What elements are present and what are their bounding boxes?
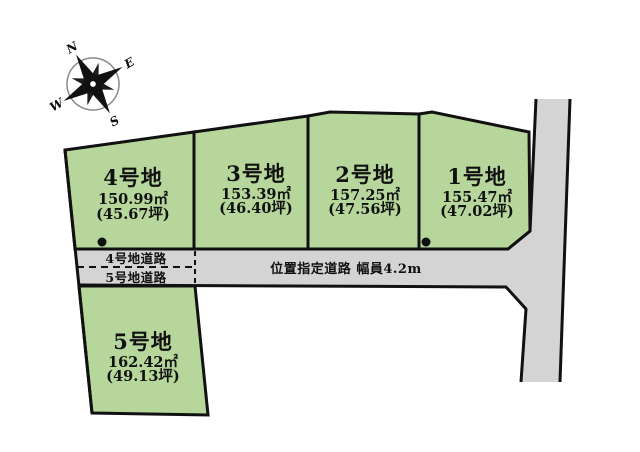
plot-5-area-tsubo: (49.13坪) xyxy=(106,368,180,385)
main-road-label: 位置指定道路 幅員4.2m xyxy=(270,261,421,277)
compass-label-west: W xyxy=(47,95,67,115)
boundary-marker-dot xyxy=(98,238,107,247)
plot-3-name: 3号地 xyxy=(226,161,286,186)
plot-4-name: 4号地 xyxy=(103,165,163,190)
plot-3-label-group: 3号地 153.39㎡ (46.40坪) xyxy=(219,161,293,217)
compass-label-north: N xyxy=(63,38,81,57)
compass-rose: N E S W xyxy=(26,18,159,152)
plot-2-label-group: 2号地 157.25㎡ (47.56坪) xyxy=(328,162,402,218)
plot-2-name: 2号地 xyxy=(335,162,395,187)
plot-5-label-group: 5号地 162.42㎡ (49.13坪) xyxy=(106,329,180,385)
lot-layout-diagram: 4号地 150.99㎡ (45.67坪) 3号地 153.39㎡ (46.40坪… xyxy=(0,0,640,452)
plot-1-area-tsubo: (47.02坪) xyxy=(440,203,514,220)
plot-2-area-tsubo: (47.56坪) xyxy=(328,201,402,218)
compass-label-east: E xyxy=(121,54,138,72)
plot-1-name: 1号地 xyxy=(447,164,507,189)
compass-label-south: S xyxy=(107,113,122,130)
boundary-marker-dot xyxy=(422,238,431,247)
lot4-road-label: 4号地道路 xyxy=(105,251,166,266)
lot5-road-label: 5号地道路 xyxy=(105,270,166,285)
plot-4-area-tsubo: (45.67坪) xyxy=(96,206,170,223)
lot-layout-plan: 4号地 150.99㎡ (45.67坪) 3号地 153.39㎡ (46.40坪… xyxy=(0,0,640,452)
plot-4-label-group: 4号地 150.99㎡ (45.67坪) xyxy=(96,165,170,223)
plot-5-name: 5号地 xyxy=(113,329,173,354)
plot-1-label-group: 1号地 155.47㎡ (47.02坪) xyxy=(440,164,514,220)
plot-3-area-tsubo: (46.40坪) xyxy=(219,200,293,217)
